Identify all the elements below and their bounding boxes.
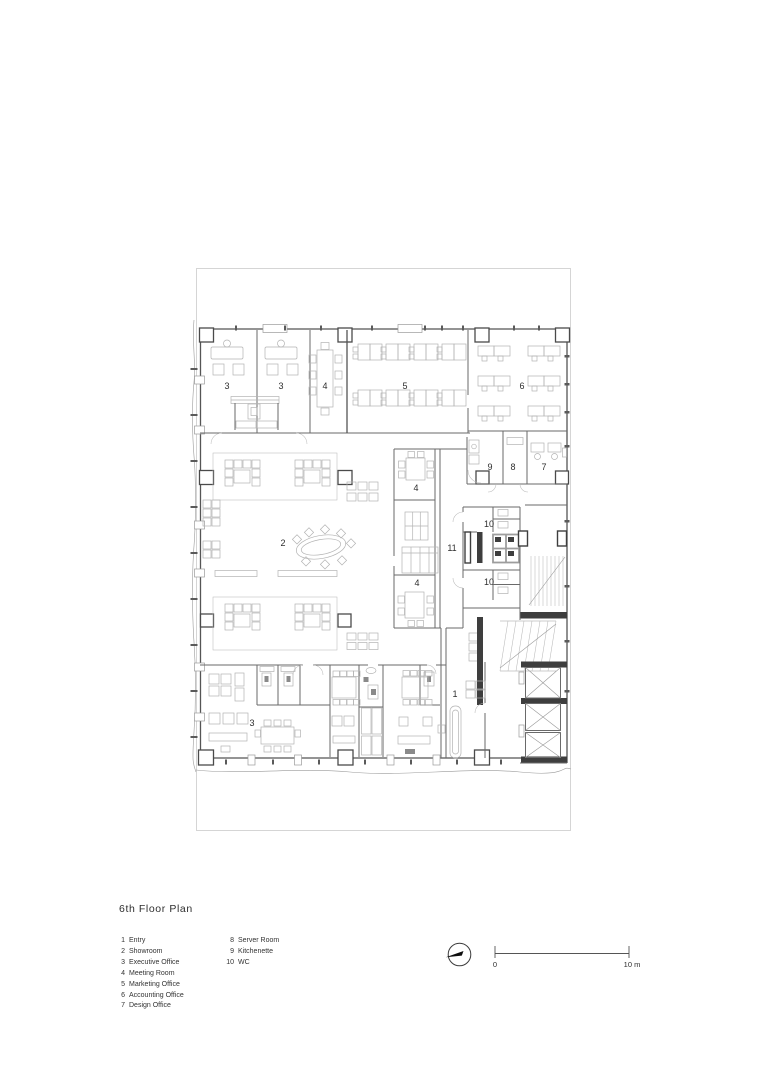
structural-columns: [199, 328, 570, 765]
legend-number: 7: [110, 1001, 125, 1012]
sofa-cluster: [295, 460, 330, 486]
bottom-band-furniture: [209, 667, 434, 756]
legend-label: Executive Office: [129, 958, 179, 969]
room-label: 3: [278, 381, 283, 391]
legend-label: Server Room: [238, 936, 279, 947]
scale-max-label: 10 m: [624, 960, 641, 969]
elevator-shaft: [526, 704, 561, 731]
wc-core: [446, 507, 520, 705]
legend-label: Accounting Office: [129, 991, 184, 1002]
page-title: 6th Floor Plan: [119, 903, 193, 915]
legend-number: 5: [110, 980, 125, 991]
legend-item: 2Showroom: [110, 947, 184, 958]
legend-number: 3: [110, 958, 125, 969]
marketing-office-desks: [353, 344, 466, 406]
room-label: 11: [447, 543, 456, 553]
legend-label: Marketing Office: [129, 980, 180, 991]
sofa-cluster: [295, 604, 330, 630]
floor-plan-drawing: 3 3 4 5 6 9 8 7 4 10 2 11 10 4 1 3 0 10 …: [0, 0, 768, 1086]
legend-item: 5Marketing Office: [110, 980, 184, 991]
legend-column-2: 8Server Room 9Kitchenette 10WC: [219, 936, 279, 969]
room-label: 4: [322, 381, 327, 391]
room-label: 10: [484, 577, 494, 587]
bottom-band-walls: [200, 628, 485, 758]
room-label: 5: [402, 381, 407, 391]
room-label: 3: [249, 718, 254, 728]
legend-label: Design Office: [129, 1001, 171, 1012]
room-label: 8: [510, 462, 515, 472]
legend-number: 1: [110, 936, 125, 947]
room-label: 6: [519, 381, 524, 391]
sofa-cluster: [225, 604, 260, 630]
room-label: 2: [280, 538, 285, 548]
room-label: 4: [414, 578, 419, 588]
top-band-walls: [200, 330, 567, 433]
legend-number: 8: [219, 936, 234, 947]
scale-zero-label: 0: [493, 960, 497, 969]
legend-label: Meeting Room: [129, 969, 175, 980]
stairs: [500, 505, 567, 671]
legend-item: 3Executive Office: [110, 958, 184, 969]
room-label: 7: [541, 462, 546, 472]
legend-number: 4: [110, 969, 125, 980]
elevator-shaft: [526, 668, 561, 699]
scale-bar: 0 10 m: [493, 946, 640, 969]
middle-meeting-rooms: [394, 449, 467, 628]
legend-column-1: 1Entry 2Showroom 3Executive Office 4Meet…: [110, 936, 184, 1012]
drawing-sheet: 3 3 4 5 6 9 8 7 4 10 2 11 10 4 1 3 0 10 …: [0, 0, 768, 1086]
elevators: [519, 662, 567, 764]
room-label: 4: [413, 483, 418, 493]
legend-item: 10WC: [219, 958, 279, 969]
legend-label: Showroom: [129, 947, 162, 958]
stair-treads: [529, 556, 565, 606]
legend-number: 9: [219, 947, 234, 958]
room-label: 3: [224, 381, 229, 391]
building-facade: [191, 320, 572, 773]
elevator-shaft: [526, 733, 561, 758]
legend-number: 6: [110, 991, 125, 1002]
legend-label: Kitchenette: [238, 947, 273, 958]
sofa-cluster: [225, 460, 260, 486]
legend-item: 9Kitchenette: [219, 947, 279, 958]
legend-number: 10: [219, 958, 234, 969]
legend-number: 2: [110, 947, 125, 958]
room-label: 9: [487, 462, 492, 472]
legend-item: 4Meeting Room: [110, 969, 184, 980]
legend-item: 8Server Room: [219, 936, 279, 947]
legend-item: 6Accounting Office: [110, 991, 184, 1002]
legend-item: 1Entry: [110, 936, 184, 947]
room-label: 10: [484, 519, 494, 529]
legend-item: 7Design Office: [110, 1001, 184, 1012]
north-arrow-icon: [446, 943, 471, 966]
legend-label: WC: [238, 958, 250, 969]
legend-label: Entry: [129, 936, 145, 947]
meeting-room-top-furniture: [309, 343, 342, 416]
room-label: 1: [452, 689, 457, 699]
